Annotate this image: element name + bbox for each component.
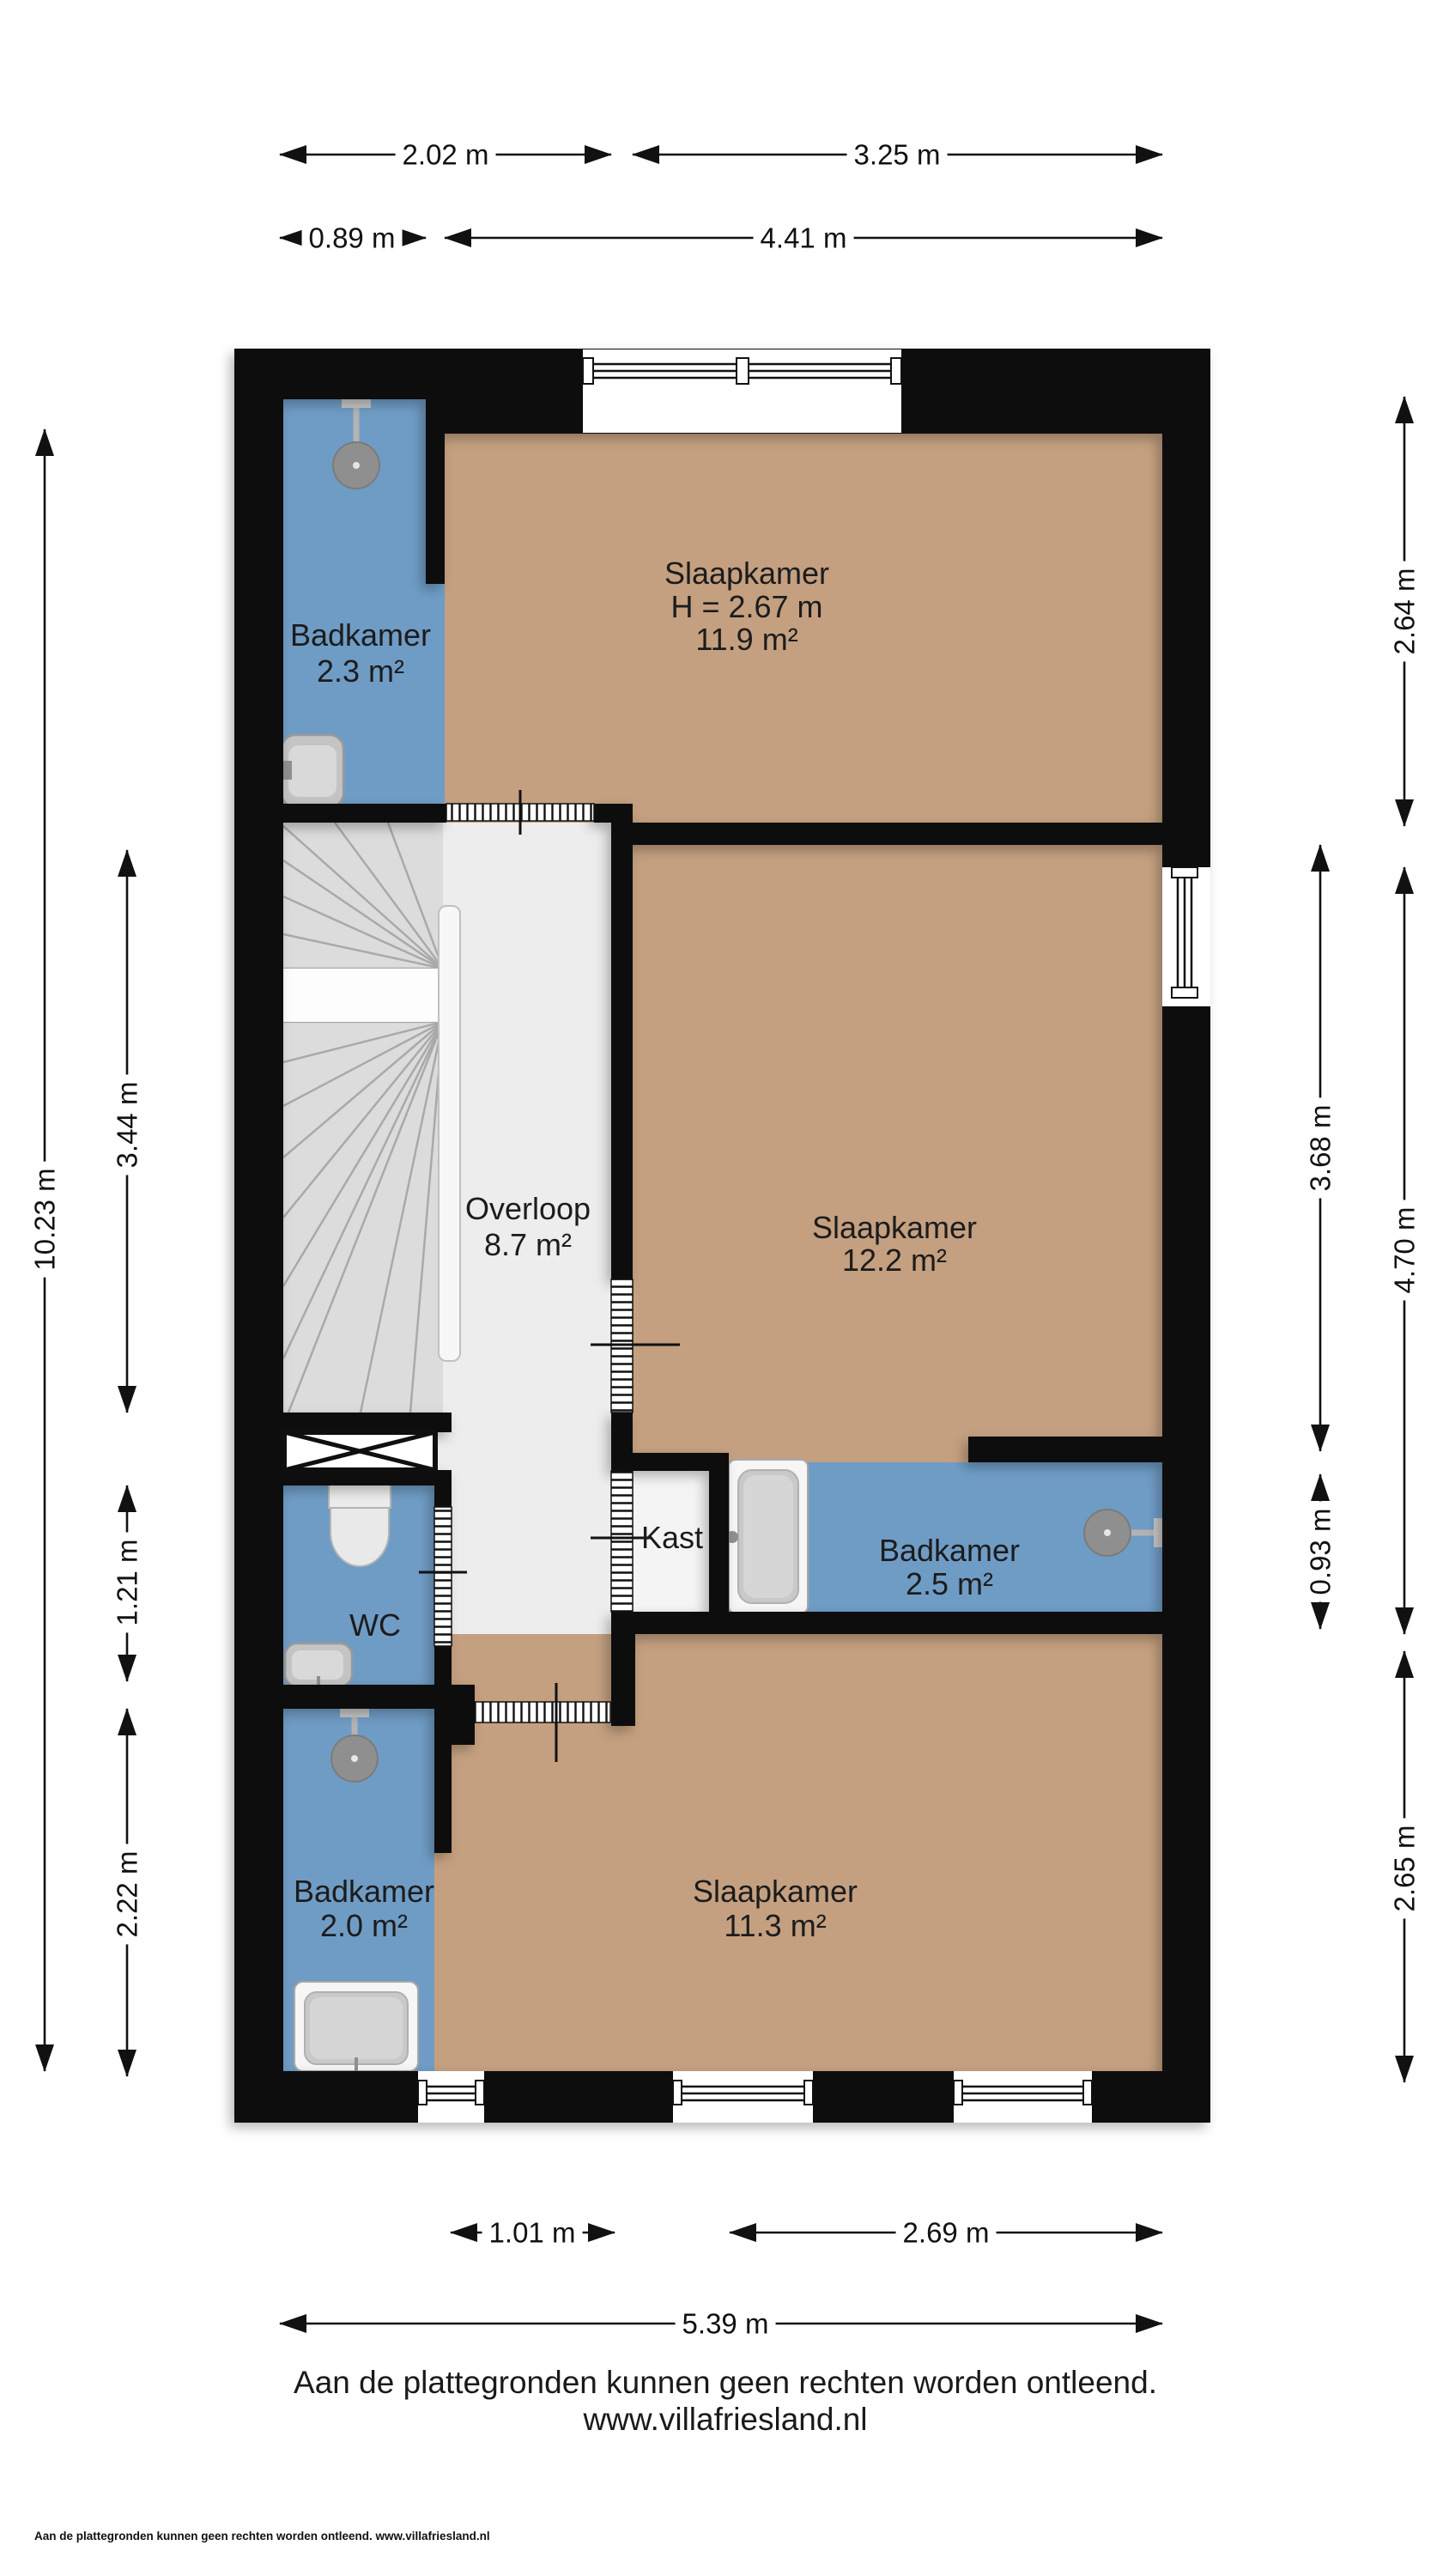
dim-top-right: 3.25 m: [847, 139, 948, 171]
sink-icon: [285, 1643, 352, 1686]
dim-right-top: 2.64 m: [1389, 562, 1421, 662]
dim-top-left: 2.02 m: [396, 139, 496, 171]
room-area-badkamer-top: 2.3 m²: [317, 656, 404, 687]
room-area-badkamer-bottom: 2.0 m²: [320, 1911, 408, 1941]
room-label-kast: Kast: [641, 1522, 703, 1553]
dim-right-bottom: 2.65 m: [1389, 1819, 1421, 1919]
room-area-slaapkamer-bottom: 11.3 m²: [724, 1911, 826, 1941]
room-area-badkamer-mid: 2.5 m²: [906, 1569, 993, 1600]
room-label-slaapkamer-bottom: Slaapkamer: [693, 1876, 858, 1907]
shaft-box: [284, 1432, 435, 1470]
stair-landing: [283, 969, 443, 1022]
window-icon: [418, 2071, 484, 2123]
dim-bottom-total: 5.39 m: [676, 2308, 776, 2340]
door-opening-icon: [611, 1471, 633, 1612]
window-icon: [954, 2071, 1092, 2123]
floorplan-page: Badkamer 2.3 m² Slaapkamer H = 2.67 m 11…: [0, 0, 1449, 2576]
window-icon: [1162, 867, 1210, 1006]
dim-left-total: 10.23 m: [29, 1161, 61, 1277]
room-label-badkamer-mid: Badkamer: [879, 1535, 1020, 1566]
dim-bottom-right: 2.69 m: [896, 2217, 997, 2249]
dim-top2-right: 4.41 m: [754, 222, 854, 254]
bathtub-icon: [294, 1982, 418, 2071]
bathtub-icon: [726, 1460, 808, 1613]
slaapkamer-bottom-floor: [434, 1634, 1162, 2071]
room-label-badkamer-top: Badkamer: [290, 620, 431, 651]
room-ceiling-slaapkamer-top: H = 2.67 m: [670, 592, 822, 623]
dim-left-wc: 1.21 m: [112, 1533, 143, 1633]
dim-left-bath: 2.22 m: [112, 1844, 143, 1945]
room-area-slaapkamer-mid: 12.2 m²: [842, 1245, 947, 1276]
window-icon: [673, 2071, 813, 2123]
stair-handrail: [439, 906, 460, 1361]
floorplan-drawing: [0, 0, 1449, 2576]
room-area-slaapkamer-top: 11.9 m²: [695, 624, 797, 655]
stairs: [283, 823, 460, 1413]
slaapkamer-top-floor: [445, 434, 1162, 823]
room-area-overloop: 8.7 m²: [484, 1230, 572, 1261]
dim-right-inner-top: 3.68 m: [1305, 1098, 1337, 1199]
dim-top2-left: 0.89 m: [302, 222, 403, 254]
dim-right-mid: 4.70 m: [1389, 1200, 1421, 1301]
room-label-badkamer-bottom: Badkamer: [294, 1876, 434, 1907]
door-opening-icon: [434, 1507, 452, 1646]
dim-left-stairs: 3.44 m: [112, 1075, 143, 1176]
sink-icon: [280, 735, 343, 807]
room-label-slaapkamer-top: Slaapkamer: [664, 558, 829, 589]
room-label-overloop: Overloop: [465, 1194, 591, 1224]
toilet-icon: [329, 1482, 391, 1566]
footer-disclaimer: Aan de plattegronden kunnen geen rechten…: [294, 2365, 1157, 2401]
room-label-wc: WC: [349, 1610, 401, 1641]
door-opening-icon: [475, 1702, 610, 1722]
window-icon: [583, 349, 901, 433]
room-label-slaapkamer-mid: Slaapkamer: [812, 1212, 977, 1243]
dim-right-inner-mid: 0.93 m: [1305, 1502, 1337, 1602]
small-print: Aan de plattegronden kunnen geen rechten…: [34, 2530, 490, 2543]
footer-website: www.villafriesland.nl: [583, 2402, 867, 2438]
dim-bottom-left: 1.01 m: [482, 2217, 583, 2249]
